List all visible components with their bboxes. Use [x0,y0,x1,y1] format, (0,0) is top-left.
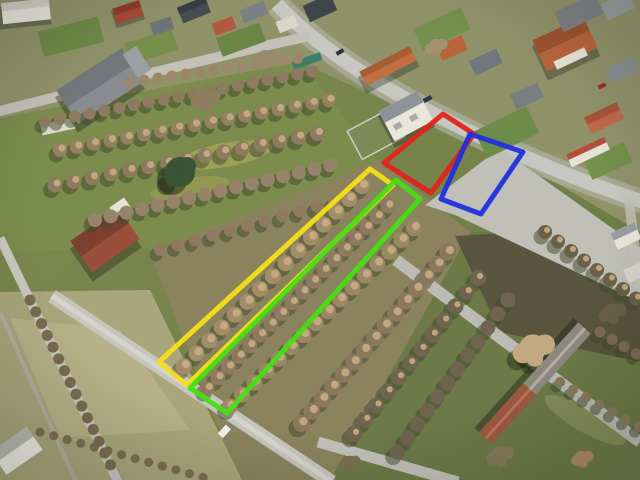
aerial-photo-svg [0,0,640,480]
aerial-photo [0,0,640,480]
vignette [0,0,640,480]
